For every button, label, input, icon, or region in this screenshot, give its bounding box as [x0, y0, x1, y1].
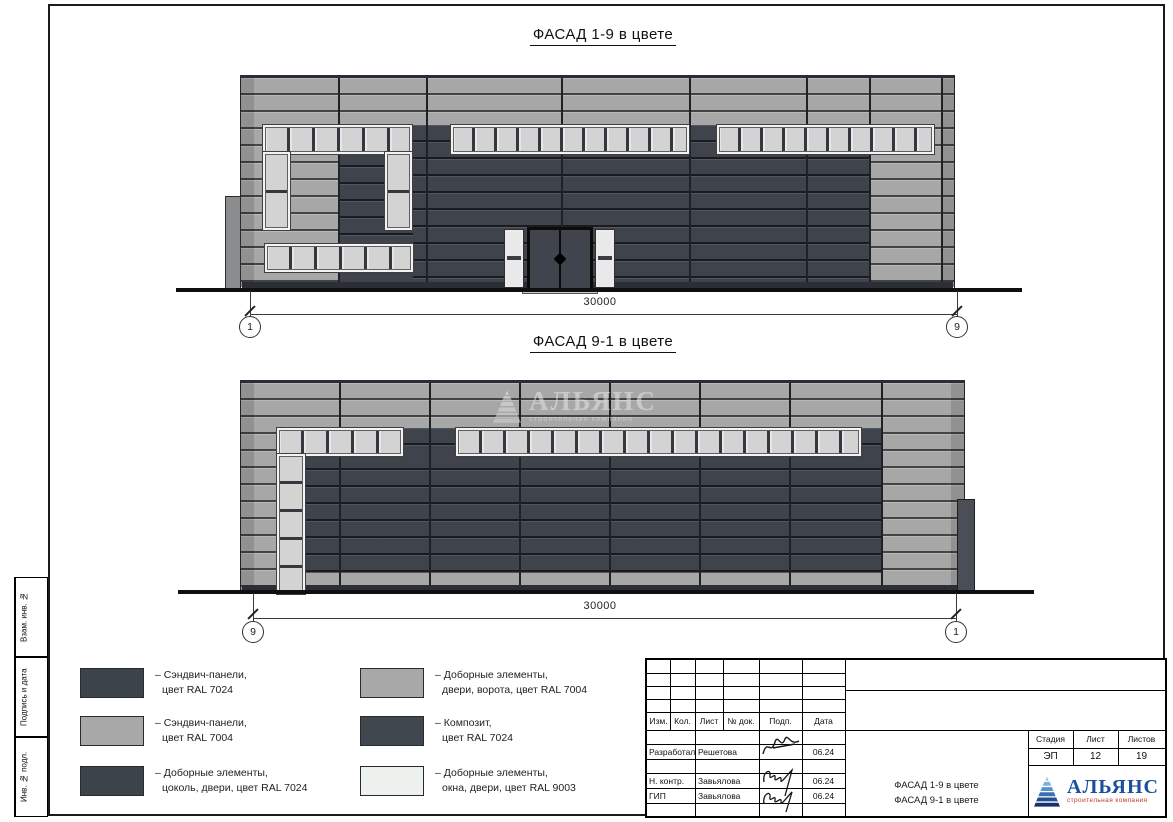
legend-swatch-ral7024-trim [80, 766, 144, 796]
legend-item: – Композит, цвет RAL 7024 [435, 716, 513, 746]
legend-item: – Доборные элементы, окна, двери, цвет R… [435, 766, 576, 796]
tb-line [695, 660, 696, 816]
window-band [717, 125, 934, 154]
facade2-dark-wall [305, 453, 881, 573]
tb-line [647, 699, 845, 700]
tb-col-data: Дата [802, 712, 845, 730]
tb-role: Н. контр. [649, 773, 695, 788]
panel-joint [426, 78, 428, 282]
tb-line [647, 673, 845, 674]
window-band [265, 244, 413, 272]
tb-date: 06.24 [802, 744, 845, 759]
tb-doc-title: ФАСАД 1-9 в цвете ФАСАД 9-1 в цвете [845, 778, 1028, 808]
legend-item: – Доборные элементы, цоколь, двери, цвет… [155, 766, 307, 796]
tb-date: 06.24 [802, 773, 845, 788]
dimension-label: 30000 [430, 296, 770, 308]
dimension-line [253, 618, 957, 619]
panel-joint [941, 78, 943, 282]
tb-sheets-label: Листов [1118, 730, 1165, 748]
facade2-dark-filler [859, 428, 881, 454]
legend-item: – Доборные элементы, двери, ворота, цвет… [435, 668, 587, 698]
window-band [451, 125, 689, 154]
tb-sheet-label: Лист [1073, 730, 1118, 748]
signature [759, 730, 802, 760]
tb-name: Завьялова [698, 773, 758, 788]
panel-joint [789, 383, 791, 585]
tb-stage-label: Стадия [1028, 730, 1073, 748]
window-band [277, 428, 403, 456]
tb-date: 06.24 [802, 788, 845, 803]
tb-name: Решетова [698, 744, 758, 759]
legend-line: цвет RAL 7024 [155, 683, 247, 698]
tb-col-podp: Подп. [759, 712, 802, 730]
door-handle [554, 253, 567, 266]
legend-line: – Сэндвич-панели, [155, 668, 247, 683]
legend-line: двери, ворота, цвет RAL 7004 [435, 683, 587, 698]
entrance-door [527, 227, 593, 291]
drawing-sheet: Взам. инв. № Подпись и дата Инв. № подл.… [0, 0, 1173, 822]
facade2-title: ФАСАД 9-1 в цвете [420, 333, 786, 350]
legend-line: – Доборные элементы, [155, 766, 307, 781]
legend-swatch-ral7024 [80, 668, 144, 698]
company-subtitle: строительная компания [1067, 797, 1159, 804]
entrance-sidelight [596, 230, 614, 287]
facade1-drawing [240, 75, 955, 290]
legend-line: – Доборные элементы, [435, 668, 587, 683]
tb-line [647, 730, 845, 731]
window-column [385, 152, 412, 230]
legend-line: – Доборные элементы, [435, 766, 576, 781]
panel-joint [881, 383, 883, 585]
window-band [456, 428, 861, 456]
dimension-label: 30000 [430, 600, 770, 612]
panel-joint [609, 383, 611, 585]
tb-sheets-value: 19 [1118, 748, 1165, 765]
margin-box-podpis: Подпись и дата [14, 657, 48, 737]
legend-swatch-ral9003 [360, 766, 424, 796]
tb-line [647, 803, 845, 804]
panel-joint [339, 383, 341, 585]
company-name: АЛЬЯНС [1067, 778, 1159, 796]
legend-swatch-ral7004 [80, 716, 144, 746]
margin-box-inv: Инв. № подл. [14, 737, 48, 817]
panel-joint [806, 78, 808, 282]
legend: – Сэндвич-панели, цвет RAL 7024 – Сэндви… [78, 664, 658, 814]
facade1-side-projection [225, 196, 241, 292]
legend-item: – Сэндвич-панели, цвет RAL 7024 [155, 668, 247, 698]
signature [759, 766, 802, 814]
tb-role: Разработал [649, 744, 695, 759]
panel-joint [519, 383, 521, 585]
ground-line [178, 590, 1034, 594]
axis-marker: 1 [239, 316, 261, 338]
tb-line [845, 690, 1165, 691]
pyramid-logo-icon [1034, 774, 1060, 808]
margin-label: Подпись и дата [15, 658, 32, 736]
margin-label: Инв. № подл. [15, 738, 32, 816]
panel-joint [699, 383, 701, 585]
facade2-side-projection [957, 499, 975, 593]
legend-line: окна, двери, цвет RAL 9003 [435, 781, 576, 796]
legend-swatch-composite [360, 716, 424, 746]
legend-swatch-ral7004-trim [360, 668, 424, 698]
axis-marker: 9 [242, 621, 264, 643]
tb-line [647, 759, 845, 760]
tb-doc-title-line2: ФАСАД 9-1 в цвете [845, 793, 1028, 808]
tb-line [647, 686, 845, 687]
legend-line: – Сэндвич-панели, [155, 716, 247, 731]
panel-joint [689, 78, 691, 282]
facade2-left-corner-trim [241, 383, 254, 590]
panel-joint [869, 78, 871, 282]
facade1-title: ФАСАД 1-9 в цвете [420, 26, 786, 43]
company-logo-text: АЛЬЯНС строительная компания [1067, 778, 1159, 804]
tb-role: ГИП [649, 788, 695, 803]
tb-col-kol: Кол. [670, 712, 695, 730]
panel-joint [429, 383, 431, 585]
tb-stage-value: ЭП [1028, 748, 1073, 765]
facade1-left-corner-trim [241, 78, 254, 287]
window-band [263, 125, 412, 154]
axis-marker: 9 [946, 316, 968, 338]
tb-col-izm: Изм. [647, 712, 670, 730]
legend-item: – Сэндвич-панели, цвет RAL 7004 [155, 716, 247, 746]
tb-doc-title-line1: ФАСАД 1-9 в цвете [845, 778, 1028, 793]
legend-line: цвет RAL 7004 [155, 731, 247, 746]
window-column [277, 454, 305, 594]
legend-line: цвет RAL 7024 [435, 731, 513, 746]
tb-col-ndok: № док. [723, 712, 759, 730]
tb-col-list: Лист [695, 712, 723, 730]
ground-line [176, 288, 1022, 292]
company-logo: АЛЬЯНС строительная компания [1028, 765, 1165, 816]
tb-name: Завьялова [698, 788, 758, 803]
window-column [263, 152, 290, 230]
legend-line: – Композит, [435, 716, 513, 731]
dimension-line [251, 314, 957, 315]
title-block: Изм. Кол. Лист № док. Подп. Дата Разрабо… [645, 658, 1167, 818]
entrance-sidelight [505, 230, 523, 287]
axis-marker: 1 [945, 621, 967, 643]
margin-label: Взам. инв. № [15, 578, 32, 656]
margin-box-vzam: Взам. инв. № [14, 577, 48, 657]
tb-sheet-value: 12 [1073, 748, 1118, 765]
facade2-drawing: АЛЬЯНС строительная компания [240, 380, 965, 593]
legend-line: цоколь, двери, цвет RAL 7024 [155, 781, 307, 796]
